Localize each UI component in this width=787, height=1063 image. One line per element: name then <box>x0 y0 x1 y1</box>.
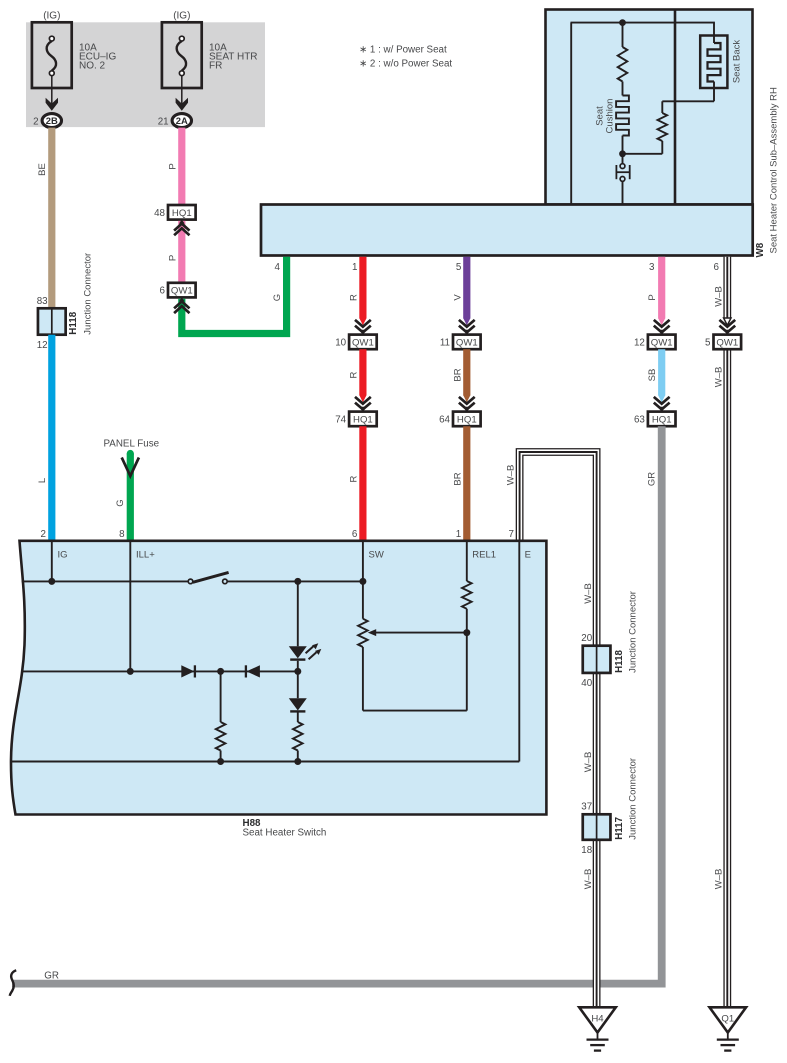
svg-text:IG: IG <box>58 549 68 560</box>
svg-text:Cushion: Cushion <box>605 99 616 134</box>
svg-text:R: R <box>348 371 359 378</box>
svg-text:W–B: W–B <box>583 869 594 890</box>
svg-text:3: 3 <box>649 262 655 273</box>
svg-text:HQ1: HQ1 <box>457 414 477 425</box>
svg-text:1: 1 <box>352 262 357 273</box>
svg-text:6: 6 <box>714 262 720 273</box>
svg-text:4: 4 <box>275 262 281 273</box>
svg-text:Seat Heater Control Sub–Assemb: Seat Heater Control Sub–Assembly RH <box>769 87 780 253</box>
svg-text:21: 21 <box>158 116 169 127</box>
svg-text:H118: H118 <box>614 649 625 672</box>
svg-text:2A: 2A <box>176 115 188 126</box>
svg-text:63: 63 <box>634 415 645 426</box>
svg-text:83: 83 <box>37 296 48 307</box>
svg-text:BE: BE <box>37 163 48 176</box>
svg-text:12: 12 <box>37 340 48 351</box>
svg-text:QW1: QW1 <box>651 337 673 348</box>
svg-text:40: 40 <box>581 678 592 689</box>
svg-text:QW1: QW1 <box>716 337 738 348</box>
svg-text:NO. 2: NO. 2 <box>79 61 106 72</box>
svg-text:Q1: Q1 <box>721 1014 734 1025</box>
svg-text:FR: FR <box>209 61 222 72</box>
svg-text:W–B: W–B <box>713 286 724 307</box>
svg-text:E: E <box>525 549 531 560</box>
svg-text:18: 18 <box>581 845 592 856</box>
svg-text:W–B: W–B <box>583 752 594 773</box>
svg-text:ILL+: ILL+ <box>136 549 155 560</box>
svg-text:G: G <box>115 499 126 506</box>
svg-text:V: V <box>452 294 463 301</box>
svg-text:2: 2 <box>41 529 46 540</box>
svg-text:20: 20 <box>581 633 592 644</box>
svg-text:74: 74 <box>335 415 346 426</box>
svg-text:7: 7 <box>508 529 513 540</box>
svg-text:P: P <box>167 163 178 169</box>
svg-text:∗ 2 : w/o Power Seat: ∗ 2 : w/o Power Seat <box>359 59 452 70</box>
svg-text:5: 5 <box>705 338 711 349</box>
svg-text:REL1: REL1 <box>472 549 496 560</box>
svg-text:W–B: W–B <box>713 869 724 890</box>
svg-text:R: R <box>348 475 359 482</box>
svg-text:W–B: W–B <box>713 367 724 388</box>
svg-text:BR: BR <box>452 472 463 485</box>
svg-text:Junction Connector: Junction Connector <box>628 591 639 673</box>
svg-text:6: 6 <box>352 529 358 540</box>
svg-text:(IG): (IG) <box>43 10 60 21</box>
svg-text:GR: GR <box>647 472 658 486</box>
svg-text:R: R <box>348 294 359 301</box>
svg-text:11: 11 <box>440 338 450 349</box>
svg-text:48: 48 <box>154 208 165 219</box>
svg-text:W8: W8 <box>755 242 766 257</box>
svg-text:Junction Connector: Junction Connector <box>628 758 639 840</box>
svg-text:1: 1 <box>456 529 461 540</box>
svg-text:GR: GR <box>44 970 59 981</box>
svg-text:W–B: W–B <box>506 465 517 486</box>
svg-text:HQ1: HQ1 <box>353 414 373 425</box>
svg-text:H118: H118 <box>68 311 79 334</box>
svg-text:2B: 2B <box>46 115 58 126</box>
svg-text:P: P <box>647 294 658 300</box>
svg-text:H4: H4 <box>591 1014 604 1025</box>
svg-text:L: L <box>37 478 48 483</box>
svg-text:SW: SW <box>369 549 384 560</box>
svg-text:QW1: QW1 <box>352 337 374 348</box>
svg-text:8: 8 <box>119 529 125 540</box>
svg-text:W–B: W–B <box>583 583 594 604</box>
svg-text:∗ 1 : w/ Power Seat: ∗ 1 : w/ Power Seat <box>359 45 447 56</box>
svg-text:QW1: QW1 <box>171 286 193 297</box>
svg-text:HQ1: HQ1 <box>172 208 192 219</box>
svg-text:BR: BR <box>452 368 463 381</box>
svg-text:2: 2 <box>33 116 38 127</box>
svg-text:(IG): (IG) <box>173 10 190 21</box>
svg-text:37: 37 <box>581 802 592 813</box>
svg-text:G: G <box>272 294 283 301</box>
svg-text:Seat Heater Switch: Seat Heater Switch <box>243 827 327 838</box>
svg-text:P: P <box>167 255 178 261</box>
svg-text:Junction Connector: Junction Connector <box>82 253 93 335</box>
svg-text:12: 12 <box>634 338 645 349</box>
svg-text:64: 64 <box>439 415 450 426</box>
svg-text:QW1: QW1 <box>456 337 478 348</box>
svg-text:H117: H117 <box>614 816 625 839</box>
svg-text:Seat Back: Seat Back <box>732 40 743 84</box>
svg-text:10: 10 <box>335 338 346 349</box>
svg-text:SB: SB <box>647 369 658 382</box>
svg-text:PANEL Fuse: PANEL Fuse <box>104 438 160 449</box>
svg-text:6: 6 <box>160 286 166 297</box>
svg-text:HQ1: HQ1 <box>652 414 672 425</box>
svg-text:5: 5 <box>456 262 462 273</box>
